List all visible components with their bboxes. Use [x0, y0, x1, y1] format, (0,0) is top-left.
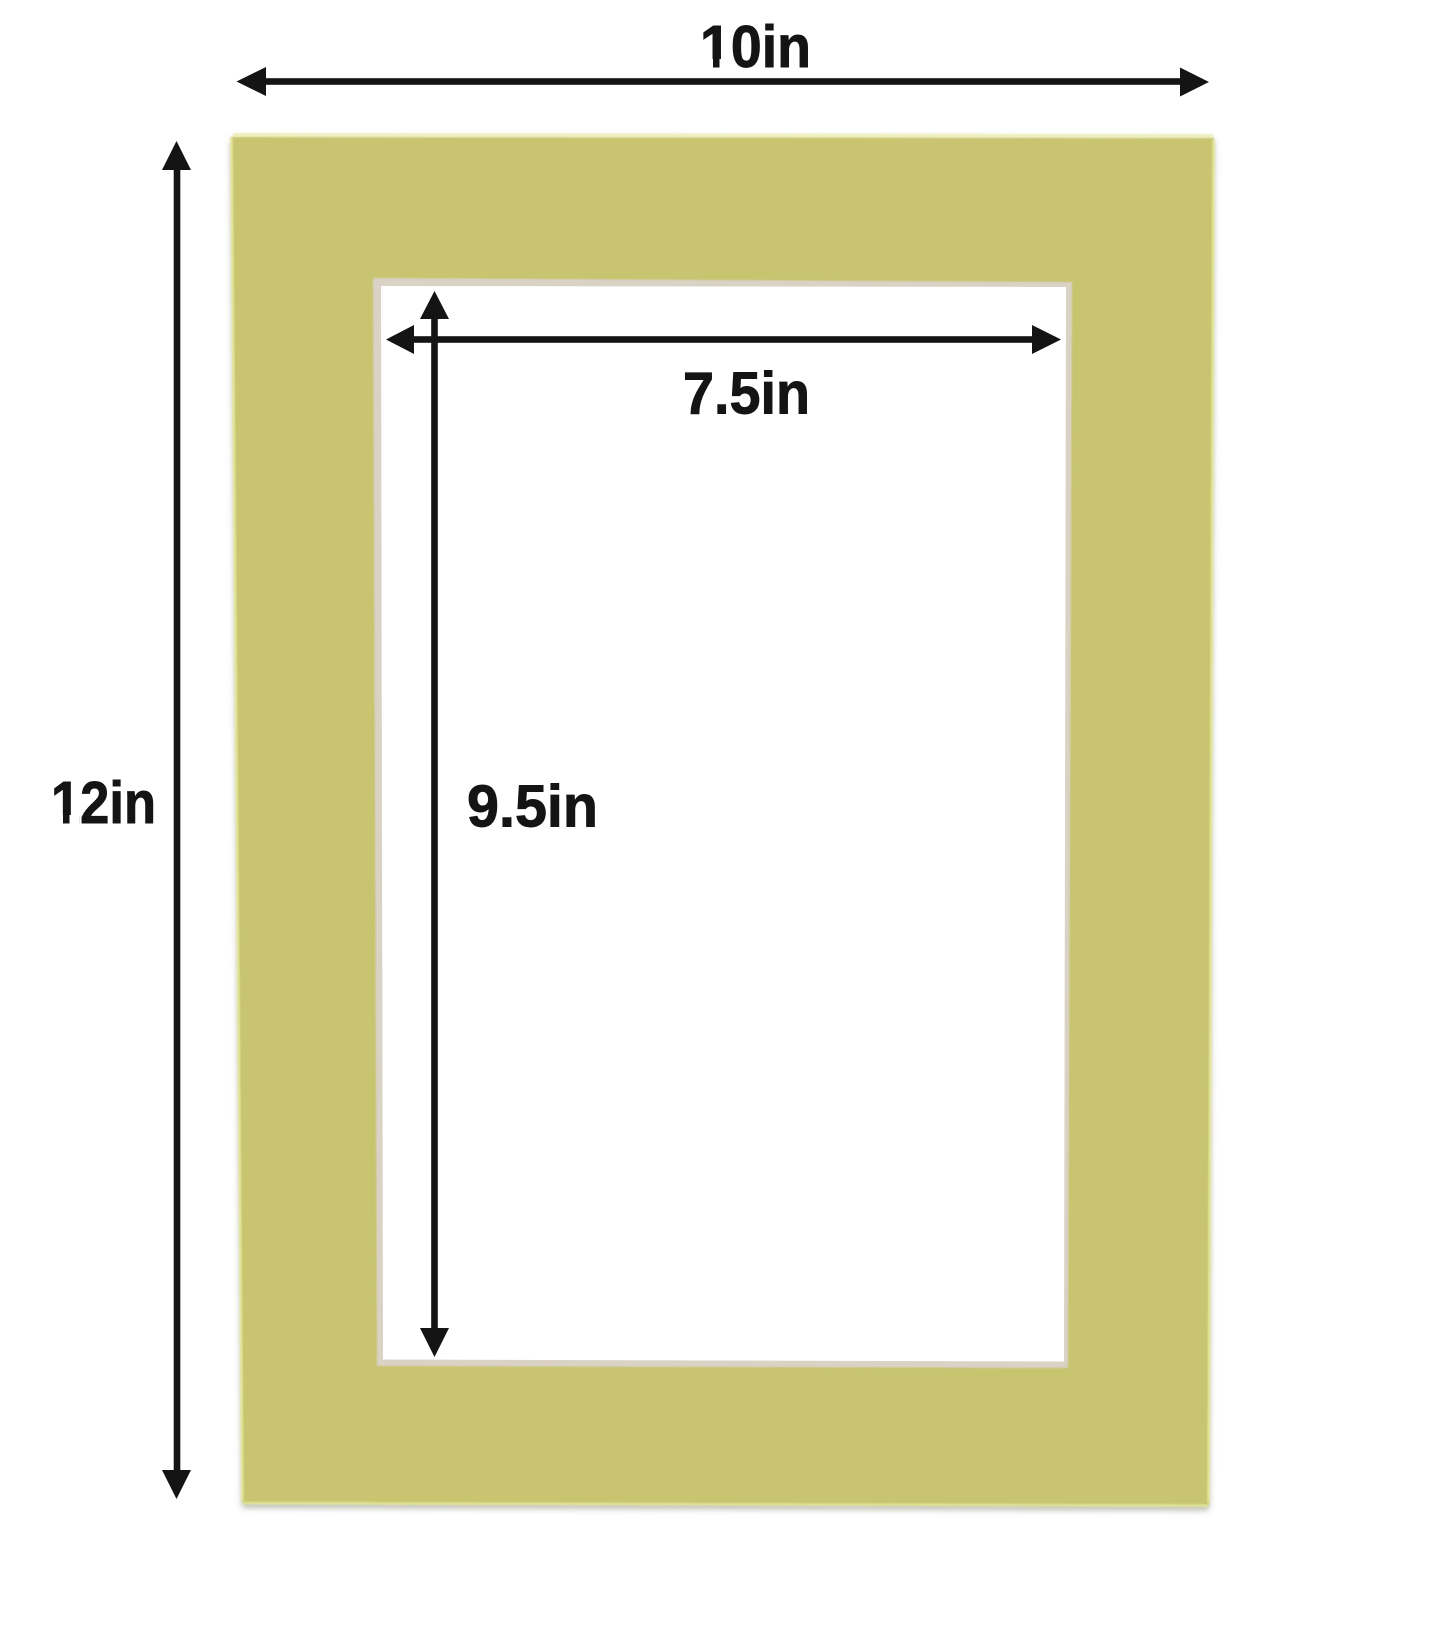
- svg-text:7.5in: 7.5in: [683, 361, 810, 427]
- svg-text:10in: 10in: [700, 14, 811, 80]
- svg-text:12in: 12in: [51, 770, 156, 836]
- svg-text:9.5in: 9.5in: [467, 774, 598, 840]
